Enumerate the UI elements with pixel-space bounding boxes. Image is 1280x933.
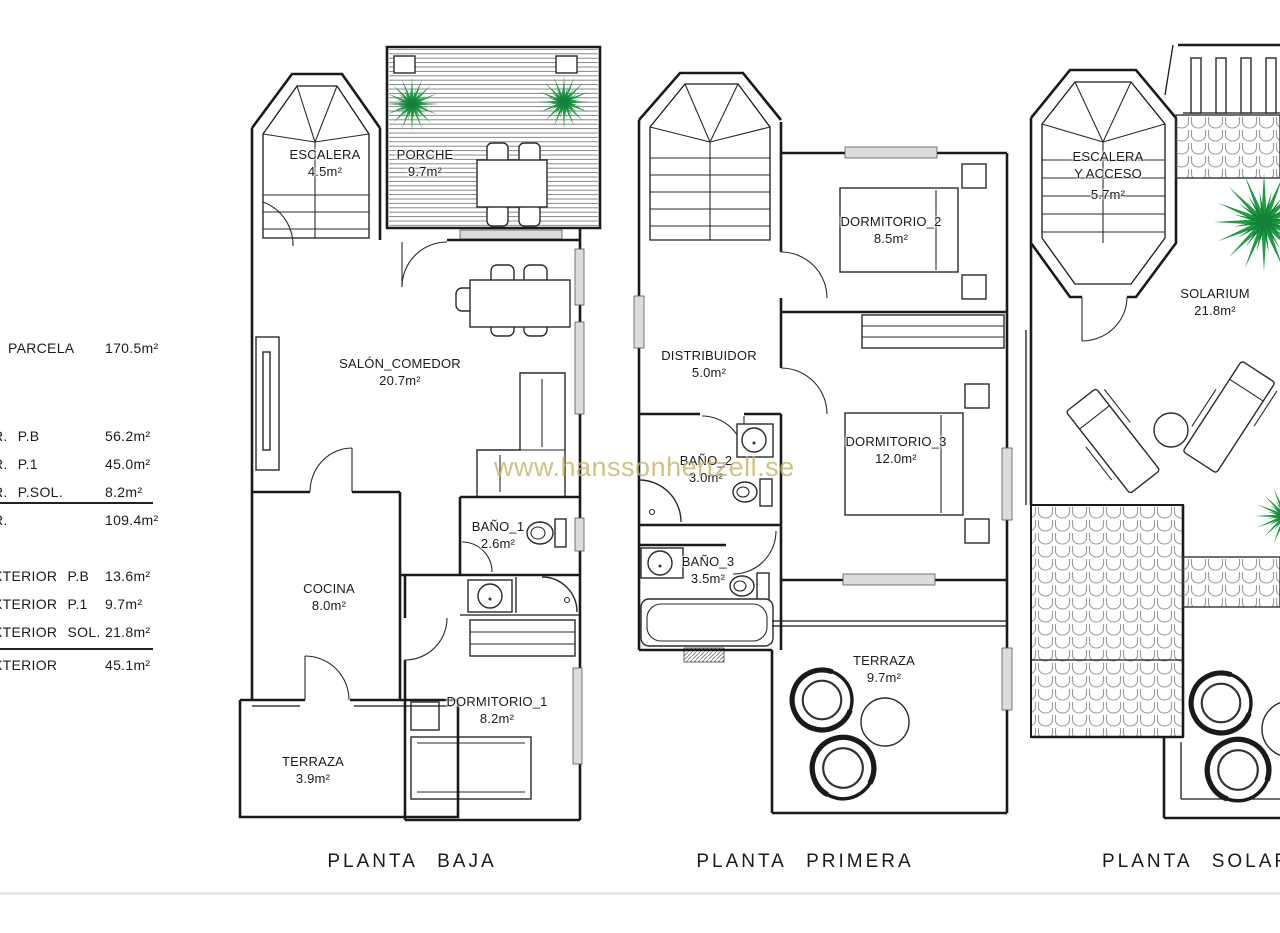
row-label: XTERIOR SOL. <box>0 624 101 640</box>
floor-title-planta-solarium: PLANTA SOLARIUM <box>1102 851 1280 873</box>
window <box>575 322 584 414</box>
row-value: 45.1m² <box>105 657 150 673</box>
planta-primera-plan <box>634 73 1012 813</box>
window <box>575 249 584 305</box>
roof-tiles <box>1031 505 1183 737</box>
row-value: 45.0m² <box>105 456 150 472</box>
floorplan-sheet: PARCELA 170.5m² R. P.B 56.2m² R. P.1 45.… <box>0 0 1280 933</box>
sun-lounger <box>1061 385 1164 498</box>
row-value: 170.5m² <box>105 340 158 356</box>
row-label: XTERIOR P.B <box>0 568 89 584</box>
table-row: XTERIOR P.1 9.7m² <box>0 596 185 614</box>
palm-plant-icon <box>385 77 439 131</box>
kitchen-door <box>310 448 352 492</box>
room-label-porche: PORCHE9.7m² <box>397 146 454 180</box>
round-chair <box>1191 673 1251 733</box>
table-row: PARCELA 170.5m² <box>0 340 185 358</box>
row-value: 9.7m² <box>105 596 142 612</box>
room-label-distribuidor: DISTRIBUIDOR5.0m² <box>661 347 757 381</box>
row-label: XTERIOR P.1 <box>0 596 88 612</box>
bedroom2 <box>781 164 1007 348</box>
window <box>573 668 582 764</box>
palm-plant-icon <box>1214 172 1280 272</box>
entrance-door <box>402 242 447 287</box>
row-value: 8.2m² <box>105 484 142 500</box>
room-label-escalera-acceso: ESCALERA Y ACCESO 5.7m² <box>1073 148 1144 203</box>
row-label: XTERIOR <box>0 657 57 673</box>
floor-title-planta-primera: PLANTA PRIMERA <box>696 851 913 873</box>
row-value: 56.2m² <box>105 428 150 444</box>
room-label-solarium: SOLARIUM21.8m² <box>1180 285 1250 319</box>
table-rule <box>0 502 153 504</box>
round-table <box>861 698 909 746</box>
planta-solarium-plan <box>1026 45 1280 818</box>
row-value: 21.8m² <box>105 624 150 640</box>
terrace-f1 <box>772 621 1012 813</box>
table-row: R. P.1 45.0m² <box>0 456 185 474</box>
room-label-dormitorio2: DORMITORIO_28.5m² <box>840 213 941 247</box>
page-divider <box>0 892 1280 895</box>
table-row: XTERIOR SOL. 21.8m² <box>0 624 185 642</box>
roof-tiles <box>1176 115 1280 178</box>
roof-tiles <box>1183 557 1280 607</box>
window <box>845 147 937 158</box>
stair-tower <box>1031 70 1176 341</box>
round-chair <box>807 732 878 803</box>
round-chair <box>792 670 852 730</box>
round-table <box>1262 701 1280 757</box>
row-label: R. <box>0 512 8 528</box>
round-chair <box>1207 739 1269 801</box>
room-label-dormitorio1: DORMITORIO_18.2m² <box>446 693 547 727</box>
table-row: XTERIOR P.B 13.6m² <box>0 568 185 586</box>
window <box>575 518 584 551</box>
bathroom3 <box>639 531 776 662</box>
room-label-bano1: BAÑO_12.6m² <box>472 518 525 552</box>
floor-title-planta-baja: PLANTA BAJA <box>327 851 496 873</box>
room-label-terraza-primera: TERRAZA9.7m² <box>853 652 915 686</box>
row-label: PARCELA <box>8 340 74 356</box>
room-label-escalera: ESCALERA4.5m² <box>290 146 361 180</box>
row-value: 109.4m² <box>105 512 158 528</box>
porch-post <box>394 56 415 73</box>
table-row: R. P.SOL. 8.2m² <box>0 484 185 502</box>
table-row: R. P.B 56.2m² <box>0 428 185 446</box>
row-label: R. P.B <box>0 428 39 444</box>
dining-set <box>456 265 570 336</box>
room-label-cocina: COCINA8.0m² <box>303 580 355 614</box>
row-value: 13.6m² <box>105 568 150 584</box>
table-rule <box>0 648 153 650</box>
room-label-terraza-baja: TERRAZA3.9m² <box>282 753 344 787</box>
palm-plant-icon <box>1255 486 1280 546</box>
round-table <box>1154 413 1188 447</box>
room-label-bano3: BAÑO_33.5m² <box>682 553 735 587</box>
row-label: R. P.SOL. <box>0 484 63 500</box>
room-label-dormitorio3: DORMITORIO_312.0m² <box>845 433 946 467</box>
watermark: www.hanssonhertzell.se <box>494 452 795 483</box>
room-label-salon-comedor: SALÓN_COMEDOR20.7m² <box>339 355 461 389</box>
table-row: XTERIOR 45.1m² <box>0 657 185 675</box>
sun-lounger <box>1178 358 1280 477</box>
row-label: R. P.1 <box>0 456 38 472</box>
palm-plant-icon <box>537 75 591 129</box>
window <box>460 230 562 239</box>
porch-post <box>556 56 577 73</box>
bedroom3 <box>781 368 1012 585</box>
pergola <box>1165 45 1280 113</box>
tv-unit <box>256 337 279 470</box>
table-row: R. 109.4m² <box>0 512 185 530</box>
window <box>634 296 644 348</box>
